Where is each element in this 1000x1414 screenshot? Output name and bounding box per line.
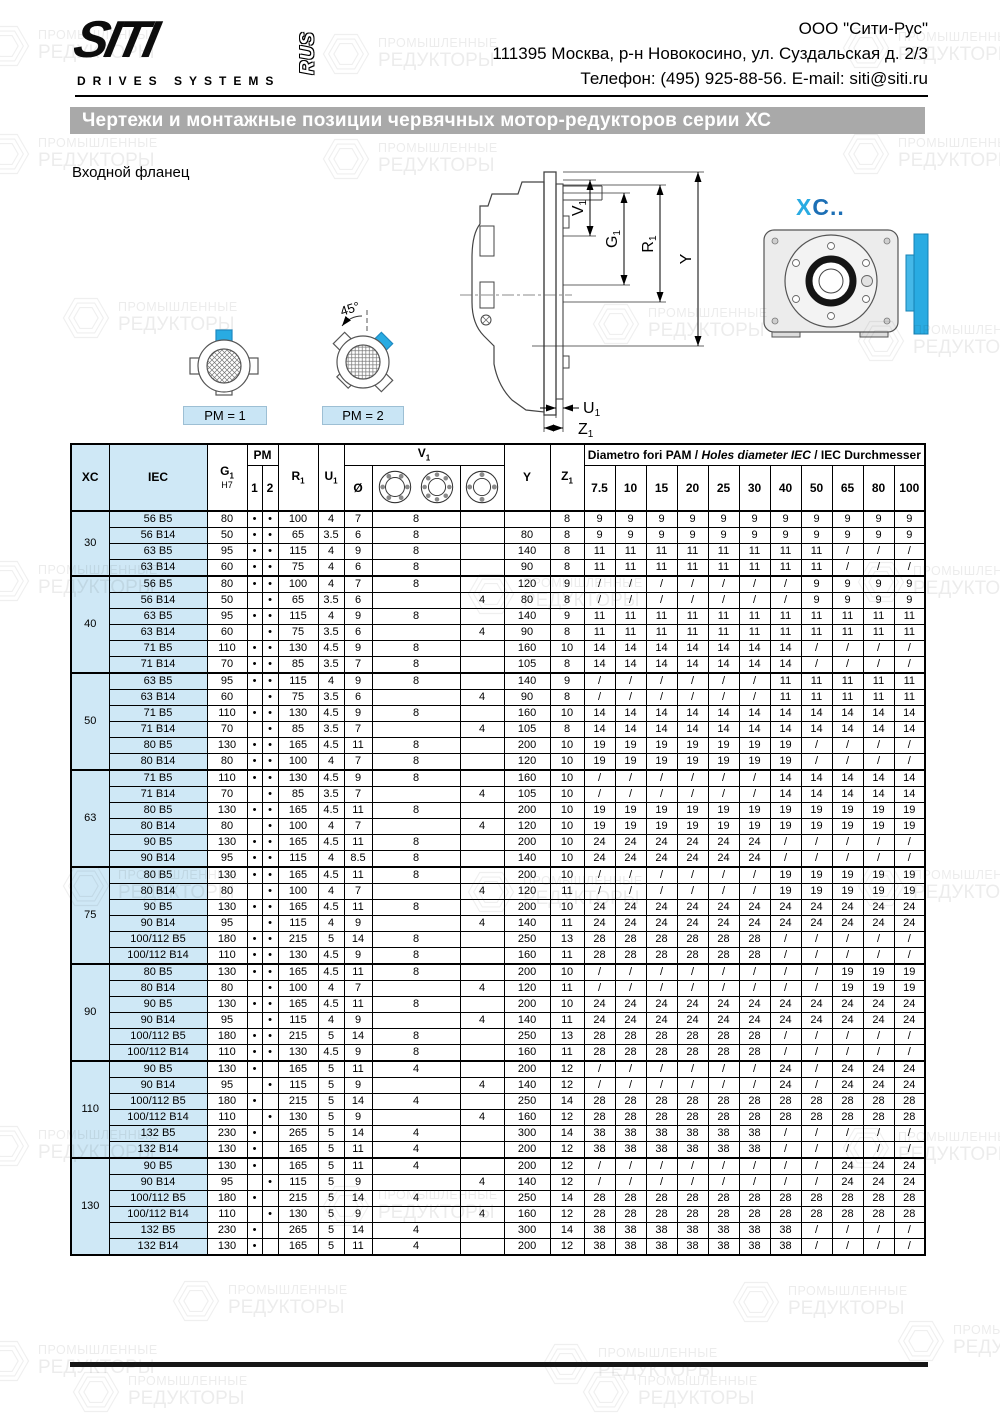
cell-diam-100: / xyxy=(894,754,925,771)
hollow-shaft-bore xyxy=(819,269,843,293)
cell-z1: 10 xyxy=(550,738,584,754)
cell-diam-65: 28 xyxy=(832,1191,863,1207)
cell-r1: 165 xyxy=(278,1142,318,1159)
cell-diam-15: 24 xyxy=(646,851,677,868)
group-label-90: 90 xyxy=(71,964,109,1061)
cell-v-4hole xyxy=(460,1142,504,1159)
group-label-110: 110 xyxy=(71,1061,109,1158)
cell-pm1: • xyxy=(247,1142,262,1159)
cell-diam-40: 14 xyxy=(770,706,801,722)
cell-y: 160 xyxy=(504,1207,550,1223)
table-row: 90 B1495•11559414012////////242424 xyxy=(71,1175,925,1191)
cell-diam-7.5: / xyxy=(584,593,615,609)
cell-pm2: • xyxy=(262,560,278,577)
cell-v-4hole xyxy=(460,1223,504,1239)
cell-diam-50: 11 xyxy=(801,609,832,625)
flange-8hole-icon xyxy=(418,467,456,507)
cell-z1: 10 xyxy=(550,706,584,722)
cell-iec: 100/112 B5 xyxy=(109,1191,207,1207)
cell-v-4hole: 4 xyxy=(460,1110,504,1126)
cell-pm2: • xyxy=(262,981,278,997)
table-row: 63 B1460••754689081111111111111111/// xyxy=(71,560,925,577)
cell-diam-10: / xyxy=(615,884,646,900)
cell-pm2: • xyxy=(262,609,278,625)
cell-diam-40: / xyxy=(770,932,801,948)
cell-r1: 265 xyxy=(278,1223,318,1239)
cell-diam-7.5: 14 xyxy=(584,706,615,722)
cell-diam-10: 28 xyxy=(615,932,646,948)
cell-iec: 90 B14 xyxy=(109,1175,207,1191)
cell-diam-25: / xyxy=(708,884,739,900)
cell-diam-80: / xyxy=(863,1223,894,1239)
cell-diam-10: 38 xyxy=(615,1223,646,1239)
cell-diam-80: / xyxy=(863,1142,894,1159)
cell-diam-7.5: 24 xyxy=(584,851,615,868)
cell-diam-20: / xyxy=(677,787,708,803)
cell-v-8hole xyxy=(372,884,460,900)
cell-diam-10: / xyxy=(615,1175,646,1191)
cell-v-8hole: 4 xyxy=(372,1142,460,1159)
cell-pm2: • xyxy=(262,932,278,948)
cell-u1: 3.5 xyxy=(318,593,344,609)
cell-diam-100: / xyxy=(894,932,925,948)
cell-pm2: • xyxy=(262,690,278,706)
cell-pm1: • xyxy=(247,738,262,754)
input-flange-highlight xyxy=(914,234,928,334)
cell-pm1 xyxy=(247,916,262,932)
cell-diam-80: 11 xyxy=(863,609,894,625)
cell-v-4hole xyxy=(460,706,504,722)
cell-v-4hole xyxy=(460,1061,504,1078)
cell-diam-15: 28 xyxy=(646,1094,677,1110)
cell-y: 200 xyxy=(504,738,550,754)
cell-diam-25: 19 xyxy=(708,738,739,754)
cell-v-8hole: 8 xyxy=(372,851,460,868)
cell-diam-50: 24 xyxy=(801,997,832,1013)
cell-diam-30: 19 xyxy=(739,819,770,835)
cell-diam-30: 24 xyxy=(739,835,770,851)
cell-diam-30: / xyxy=(739,1078,770,1094)
cell-y: 200 xyxy=(504,803,550,819)
cell-diam-80: 11 xyxy=(863,673,894,690)
cell-v-4hole: 4 xyxy=(460,884,504,900)
cell-diam-25: / xyxy=(708,593,739,609)
cell-r1: 115 xyxy=(278,1078,318,1094)
cell-pm2: • xyxy=(262,1029,278,1045)
cell-diam-50: / xyxy=(801,738,832,754)
cell-y: 120 xyxy=(504,754,550,771)
cell-diam-20: 28 xyxy=(677,1191,708,1207)
cell-diam-25: 19 xyxy=(708,819,739,835)
cell-diam-20: / xyxy=(677,867,708,884)
cell-pm1 xyxy=(247,981,262,997)
cell-diam-30: / xyxy=(739,964,770,981)
cell-diam-40: 11 xyxy=(770,690,801,706)
cell-iec: 90 B5 xyxy=(109,835,207,851)
cell-diam-15: / xyxy=(646,673,677,690)
table-row: 63 B1460•753.564908111111111111111111111… xyxy=(71,625,925,641)
cell-diam-40: / xyxy=(770,981,801,997)
cell-diam-7.5: 28 xyxy=(584,1191,615,1207)
cell-diam-10: 24 xyxy=(615,851,646,868)
cell-diam-50: 11 xyxy=(801,673,832,690)
cell-phi: 14 xyxy=(344,1223,372,1239)
cell-v-8hole xyxy=(372,690,460,706)
cell-diam-80: 19 xyxy=(863,964,894,981)
cell-diam-10: 28 xyxy=(615,1029,646,1045)
cell-v-4hole xyxy=(460,835,504,851)
cell-iec: 132 B5 xyxy=(109,1223,207,1239)
cell-u1: 5 xyxy=(318,1207,344,1223)
cell-iec: 90 B14 xyxy=(109,916,207,932)
cell-diam-7.5: 11 xyxy=(584,544,615,560)
cell-diam-7.5: 24 xyxy=(584,1013,615,1029)
page-title: Чертежи и монтажные позиции червячных мо… xyxy=(70,107,925,134)
cell-diam-80: / xyxy=(863,1126,894,1142)
cell-iec: 90 B14 xyxy=(109,1013,207,1029)
cell-phi: 7 xyxy=(344,576,372,593)
side-view-drawing: V1 G1 R1 Y U1 Z1 xyxy=(452,160,764,438)
cell-pm2: • xyxy=(262,770,278,787)
cell-u1: 4 xyxy=(318,609,344,625)
cell-diam-30: 14 xyxy=(739,722,770,738)
cell-z1: 10 xyxy=(550,803,584,819)
cell-u1: 5 xyxy=(318,1142,344,1159)
cell-diam-10: 28 xyxy=(615,1045,646,1062)
cell-y: 200 xyxy=(504,1061,550,1078)
cell-y: 200 xyxy=(504,900,550,916)
cell-diam-100: 24 xyxy=(894,1078,925,1094)
cell-diam-40: 11 xyxy=(770,544,801,560)
cell-y: 300 xyxy=(504,1126,550,1142)
cell-diam-100: 24 xyxy=(894,1175,925,1191)
cell-diam-40: 38 xyxy=(770,1239,801,1256)
cell-diam-15: 9 xyxy=(646,511,677,528)
cell-diam-80: 19 xyxy=(863,867,894,884)
cell-diam-40: 11 xyxy=(770,625,801,641)
cell-diam-50: / xyxy=(801,1239,832,1256)
input-flange-label: Входной фланец xyxy=(72,164,189,181)
cell-pm2: • xyxy=(262,997,278,1013)
cell-pm1 xyxy=(247,1175,262,1191)
cell-diam-10: 9 xyxy=(615,528,646,544)
cell-diam-25: / xyxy=(708,1078,739,1094)
cell-v-8hole xyxy=(372,1078,460,1094)
cell-pm2: • xyxy=(262,754,278,771)
cell-g1: 80 xyxy=(207,981,247,997)
cell-diam-65: / xyxy=(832,851,863,868)
cell-iec: 132 B14 xyxy=(109,1239,207,1256)
cell-diam-100: / xyxy=(894,738,925,754)
cell-v-8hole xyxy=(372,593,460,609)
cell-pm1 xyxy=(247,593,262,609)
cell-v-8hole xyxy=(372,787,460,803)
cell-diam-7.5: 28 xyxy=(584,1045,615,1062)
cell-iec: 80 B14 xyxy=(109,981,207,997)
cell-pm1: • xyxy=(247,1223,262,1239)
cell-diam-100: 24 xyxy=(894,997,925,1013)
siti-logo-tagline: DRIVES SYSTEMS xyxy=(77,74,280,88)
cell-r1: 100 xyxy=(278,754,318,771)
cell-v-4hole: 4 xyxy=(460,1175,504,1191)
cell-v-8hole: 8 xyxy=(372,657,460,674)
table-row: 80 B1480•10047412011////////191919 xyxy=(71,981,925,997)
cell-phi: 7 xyxy=(344,754,372,771)
cell-diam-25: 24 xyxy=(708,997,739,1013)
pm1-caption: PM = 1 xyxy=(183,406,267,425)
cell-pm2: • xyxy=(262,641,278,657)
cell-diam-80: / xyxy=(863,1029,894,1045)
cell-v-8hole: 8 xyxy=(372,673,460,690)
cell-y: 105 xyxy=(504,657,550,674)
cell-v-4hole: 4 xyxy=(460,1078,504,1094)
cell-diam-15: / xyxy=(646,593,677,609)
cell-diam-50: / xyxy=(801,981,832,997)
cell-g1: 130 xyxy=(207,867,247,884)
dim-r1: R1 xyxy=(640,235,659,253)
cell-diam-65: 19 xyxy=(832,867,863,884)
cell-diam-25: / xyxy=(708,576,739,593)
cell-diam-10: / xyxy=(615,981,646,997)
cell-g1: 230 xyxy=(207,1223,247,1239)
cell-iec: 80 B5 xyxy=(109,738,207,754)
cell-diam-10: / xyxy=(615,593,646,609)
cell-diam-10: 38 xyxy=(615,1239,646,1256)
cell-diam-40: 14 xyxy=(770,657,801,674)
cell-v-8hole: 8 xyxy=(372,997,460,1013)
dim-u1: U1 xyxy=(583,400,601,419)
cell-y: 300 xyxy=(504,1223,550,1239)
cell-diam-10: 14 xyxy=(615,706,646,722)
cell-pm2: • xyxy=(262,884,278,900)
cell-v-8hole: 4 xyxy=(372,1061,460,1078)
col-header-phi: Ø xyxy=(344,466,372,512)
cell-phi: 11 xyxy=(344,900,372,916)
cell-pm1 xyxy=(247,722,262,738)
cell-v-4hole: 4 xyxy=(460,625,504,641)
cell-diam-80: 11 xyxy=(863,625,894,641)
cell-diam-15: 28 xyxy=(646,932,677,948)
cell-pm1: • xyxy=(247,932,262,948)
cell-z1: 8 xyxy=(550,560,584,577)
cell-phi: 9 xyxy=(344,1013,372,1029)
watermark: ПРОМЫШЛЕННЫЕРЕДУКТОРЫ xyxy=(580,1366,758,1414)
cell-y: 250 xyxy=(504,1029,550,1045)
cell-v-4hole xyxy=(460,1045,504,1062)
cell-pm2 xyxy=(262,1061,278,1078)
cell-g1: 110 xyxy=(207,1045,247,1062)
cell-z1: 8 xyxy=(550,657,584,674)
cell-diam-50: 24 xyxy=(801,900,832,916)
cell-z1: 14 xyxy=(550,1223,584,1239)
cell-diam-25: 28 xyxy=(708,1045,739,1062)
cell-diam-7.5: / xyxy=(584,1061,615,1078)
cell-diam-65: 24 xyxy=(832,997,863,1013)
cell-pm2 xyxy=(262,1094,278,1110)
table-row: 7580 B5130••1654.511820010//////19191919… xyxy=(71,867,925,884)
cell-pm1: • xyxy=(247,673,262,690)
cell-pm1: • xyxy=(247,511,262,528)
cell-diam-100: 11 xyxy=(894,690,925,706)
cell-iec: 63 B14 xyxy=(109,560,207,577)
cell-diam-10: 24 xyxy=(615,916,646,932)
cell-diam-15: / xyxy=(646,964,677,981)
cell-diam-100: / xyxy=(894,1223,925,1239)
cell-u1: 4 xyxy=(318,1013,344,1029)
siti-logo: SITI RUS DRIVES SYSTEMS xyxy=(75,14,375,94)
cell-diam-25: / xyxy=(708,981,739,997)
cell-v-4hole xyxy=(460,560,504,577)
cell-diam-50: 14 xyxy=(801,787,832,803)
cell-phi: 9 xyxy=(344,706,372,722)
cell-diam-10: 11 xyxy=(615,544,646,560)
cell-phi: 11 xyxy=(344,997,372,1013)
cell-diam-10: / xyxy=(615,867,646,884)
cell-diam-7.5: 19 xyxy=(584,754,615,771)
cell-phi: 14 xyxy=(344,932,372,948)
table-row: 71 B1470•853.574105814141414141414141414… xyxy=(71,722,925,738)
cell-diam-100: 24 xyxy=(894,1061,925,1078)
cell-diam-15: 28 xyxy=(646,1110,677,1126)
cell-v-4hole xyxy=(460,673,504,690)
cell-diam-80: 11 xyxy=(863,690,894,706)
cell-diam-25: 38 xyxy=(708,1142,739,1159)
cell-y: 200 xyxy=(504,997,550,1013)
cell-g1: 80 xyxy=(207,819,247,835)
table-row: 100/112 B14110••1304.5981601128282828282… xyxy=(71,948,925,965)
input-flange-plate xyxy=(544,172,556,415)
cell-diam-80: 14 xyxy=(863,706,894,722)
cell-diam-25: 11 xyxy=(708,609,739,625)
cell-diam-7.5: 28 xyxy=(584,1207,615,1223)
cell-v-4hole xyxy=(460,1158,504,1175)
cell-diam-65: 9 xyxy=(832,511,863,528)
cell-diam-15: 24 xyxy=(646,1013,677,1029)
table-row: 71 B1470•853.57410510//////1414141414 xyxy=(71,787,925,803)
cell-diam-100: 19 xyxy=(894,819,925,835)
cell-iec: 100/112 B5 xyxy=(109,1094,207,1110)
cell-y: 160 xyxy=(504,706,550,722)
cell-g1: 180 xyxy=(207,1191,247,1207)
cell-diam-15: / xyxy=(646,1078,677,1094)
cell-diam-10: 14 xyxy=(615,657,646,674)
cell-diam-40: / xyxy=(770,851,801,868)
cell-pm2: • xyxy=(262,1045,278,1062)
cell-v-8hole: 8 xyxy=(372,511,460,528)
cell-v-8hole: 8 xyxy=(372,576,460,593)
cell-diam-40: 14 xyxy=(770,770,801,787)
cell-iec: 90 B5 xyxy=(109,1061,207,1078)
cell-y: 120 xyxy=(504,576,550,593)
cell-diam-40: 28 xyxy=(770,1110,801,1126)
cell-diam-15: / xyxy=(646,690,677,706)
cell-diam-10: / xyxy=(615,1061,646,1078)
cell-v-8hole: 8 xyxy=(372,867,460,884)
cell-diam-40: 19 xyxy=(770,754,801,771)
cell-diam-10: 24 xyxy=(615,997,646,1013)
cell-diam-65: 14 xyxy=(832,787,863,803)
cell-diam-7.5: 28 xyxy=(584,948,615,965)
model-label-x: X xyxy=(796,194,812,220)
cell-iec: 63 B5 xyxy=(109,609,207,625)
table-row: 63 B1460•753.564908//////1111111111 xyxy=(71,690,925,706)
cell-diam-65: / xyxy=(832,738,863,754)
cell-diam-10: 28 xyxy=(615,1110,646,1126)
cell-diam-20: 24 xyxy=(677,851,708,868)
cell-diam-30: 9 xyxy=(739,511,770,528)
cell-diam-25: 9 xyxy=(708,528,739,544)
cell-diam-100: 28 xyxy=(894,1110,925,1126)
cell-y: 250 xyxy=(504,1191,550,1207)
cell-diam-15: 28 xyxy=(646,1045,677,1062)
cell-diam-15: 24 xyxy=(646,835,677,851)
cell-z1: 10 xyxy=(550,770,584,787)
cell-pm2: • xyxy=(262,528,278,544)
cell-iec: 90 B5 xyxy=(109,1158,207,1175)
cell-diam-7.5: 24 xyxy=(584,835,615,851)
cell-diam-25: / xyxy=(708,673,739,690)
cell-pm1: • xyxy=(247,1126,262,1142)
cell-diam-10: / xyxy=(615,576,646,593)
cell-diam-20: 19 xyxy=(677,738,708,754)
cell-u1: 4 xyxy=(318,754,344,771)
cell-diam-7.5: 19 xyxy=(584,738,615,754)
cell-iec: 71 B5 xyxy=(109,641,207,657)
col-header-g1: G1H7 xyxy=(207,444,247,511)
cell-u1: 4 xyxy=(318,851,344,868)
cell-pm1: • xyxy=(247,528,262,544)
cell-y: 200 xyxy=(504,1142,550,1159)
cell-v-4hole xyxy=(460,932,504,948)
cell-phi: 6 xyxy=(344,690,372,706)
cell-diam-20: / xyxy=(677,964,708,981)
cell-diam-20: 28 xyxy=(677,1207,708,1223)
cell-diam-50: 9 xyxy=(801,593,832,609)
cell-pm2: • xyxy=(262,867,278,884)
cell-diam-100: 19 xyxy=(894,964,925,981)
cell-diam-100: 19 xyxy=(894,867,925,884)
cell-v-8hole xyxy=(372,625,460,641)
cell-diam-25: 24 xyxy=(708,1013,739,1029)
cell-diam-65: 11 xyxy=(832,609,863,625)
cell-diam-80: 9 xyxy=(863,576,894,593)
pm1-flange-drawing xyxy=(182,320,266,404)
cell-iec: 71 B14 xyxy=(109,722,207,738)
cell-z1: 12 xyxy=(550,1061,584,1078)
cell-iec: 56 B5 xyxy=(109,511,207,528)
cell-diam-50: 9 xyxy=(801,528,832,544)
cell-diam-65: / xyxy=(832,544,863,560)
cell-diam-40: 24 xyxy=(770,916,801,932)
cell-y: 200 xyxy=(504,964,550,981)
cell-diam-30: 28 xyxy=(739,1110,770,1126)
cell-u1: 5 xyxy=(318,1029,344,1045)
pm2-caption: PM = 2 xyxy=(322,406,404,425)
cell-diam-80: 24 xyxy=(863,997,894,1013)
cell-r1: 265 xyxy=(278,1126,318,1142)
cell-diam-40: 24 xyxy=(770,1078,801,1094)
cell-r1: 115 xyxy=(278,1175,318,1191)
cell-v-4hole: 4 xyxy=(460,916,504,932)
cell-diam-7.5: 28 xyxy=(584,1029,615,1045)
cell-diam-7.5: / xyxy=(584,867,615,884)
cell-v-4hole xyxy=(460,1029,504,1045)
cell-diam-25: 14 xyxy=(708,657,739,674)
cell-z1: 10 xyxy=(550,964,584,981)
cell-iec: 80 B14 xyxy=(109,754,207,771)
table-row: 5063 B595••1154981409//////1111111111 xyxy=(71,673,925,690)
cell-pm2: • xyxy=(262,657,278,674)
